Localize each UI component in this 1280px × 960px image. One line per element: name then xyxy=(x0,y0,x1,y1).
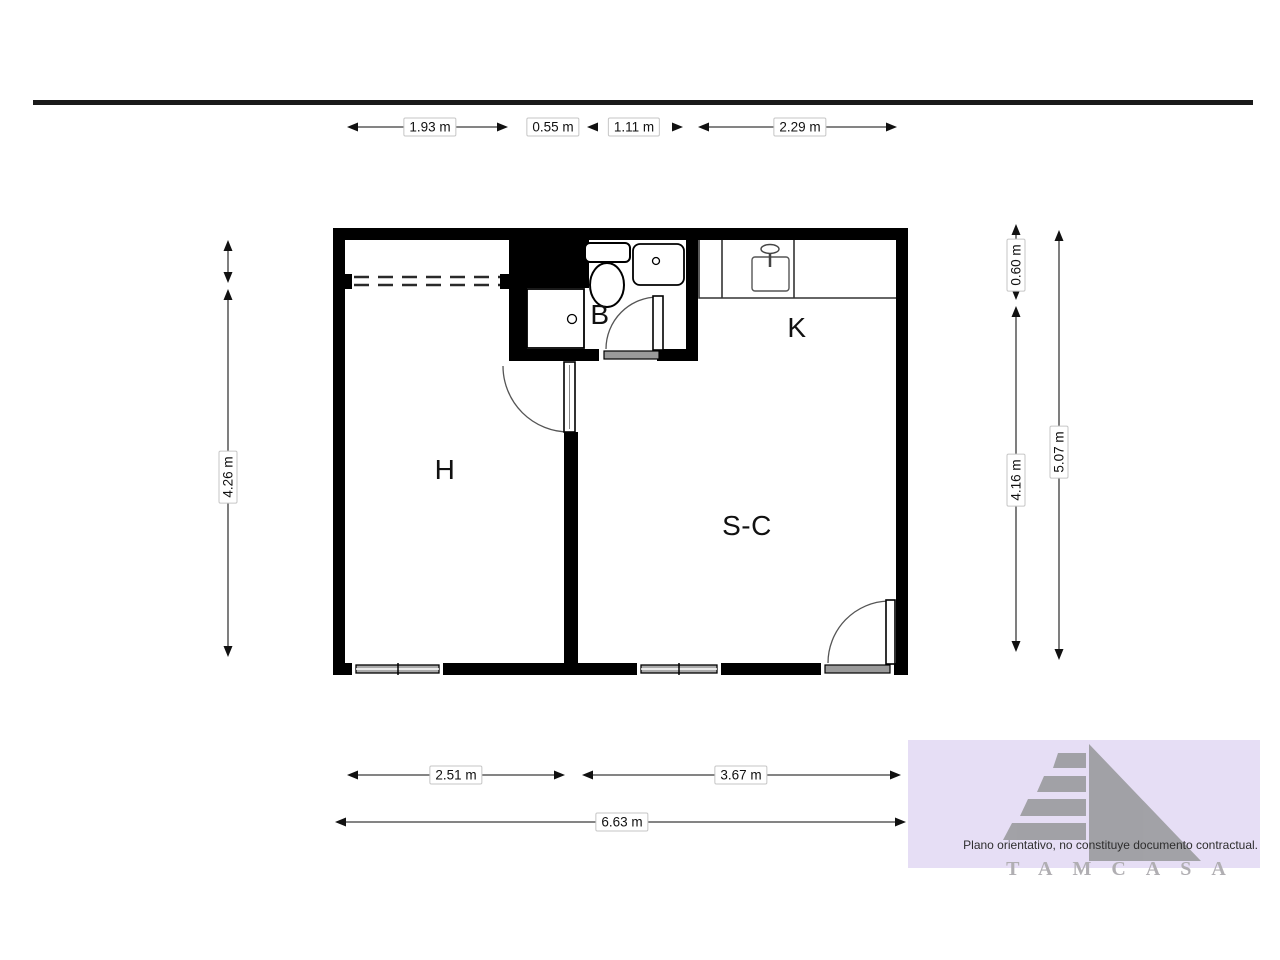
dim-label-total-width: 6.63 m xyxy=(595,813,648,832)
kitchen-counter xyxy=(699,240,896,298)
window-sc xyxy=(637,663,721,675)
dim-label-bottom-1: 2.51 m xyxy=(429,766,482,785)
entry-door xyxy=(828,600,895,664)
toilet xyxy=(585,243,630,307)
wardrobe-dashed-rail xyxy=(354,277,500,285)
washbasin xyxy=(633,244,684,285)
dim-label-top-1: 1.93 m xyxy=(403,118,456,137)
dim-label-top-4: 2.29 m xyxy=(773,118,826,137)
bathroom-threshold xyxy=(604,351,659,359)
room-label-k: K xyxy=(787,312,806,344)
room-label-h: H xyxy=(435,454,456,486)
floor-plan-page: H B K S-C 1.93 m 0.55 m 1.11 m 2.29 m 2.… xyxy=(0,0,1280,960)
shower-tray xyxy=(527,289,584,348)
dim-label-top-3: 1.11 m xyxy=(608,118,660,137)
entry-threshold xyxy=(821,663,894,675)
dim-label-bottom-2: 3.67 m xyxy=(714,766,767,785)
dim-label-total-height: 5.07 m xyxy=(1050,425,1069,478)
dim-label-top-2: 0.55 m xyxy=(526,118,579,137)
dim-label-right-1: 0.60 m xyxy=(1007,238,1026,291)
room-label-sc: S-C xyxy=(722,510,772,542)
watermark-brand: TAMCASA xyxy=(992,858,1260,881)
window-h xyxy=(352,663,443,675)
header-rule xyxy=(33,100,1253,105)
dim-label-left-height: 4.26 m xyxy=(219,450,238,503)
watermark-disclaimer: Plano orientativo, no constituye documen… xyxy=(928,838,1258,852)
interior-door-h xyxy=(503,362,575,432)
room-label-b: B xyxy=(590,299,609,331)
dim-label-right-2: 4.16 m xyxy=(1007,453,1026,506)
